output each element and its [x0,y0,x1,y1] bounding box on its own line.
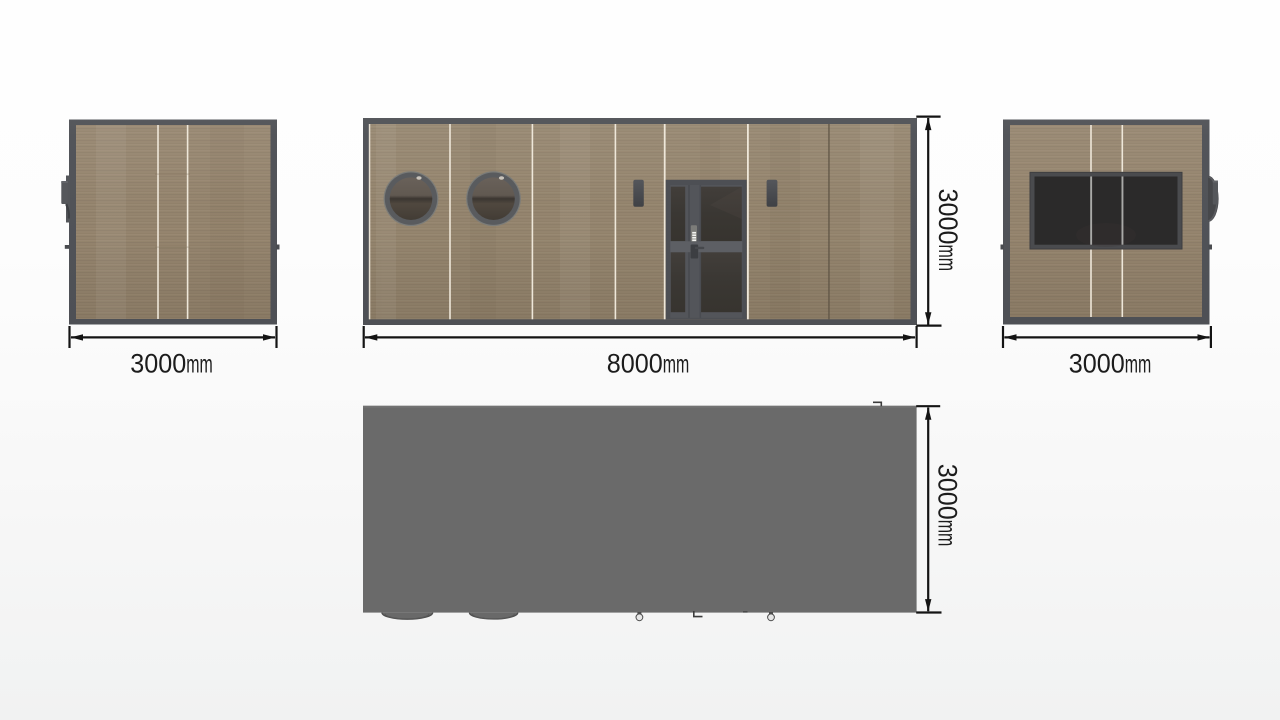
svg-text:3000: 3000 [933,464,963,520]
svg-text:mm: mm [663,351,690,379]
svg-text:3000: 3000 [1069,349,1125,379]
svg-text:3000: 3000 [130,349,186,379]
svg-text:mm: mm [933,245,961,272]
svg-text:mm: mm [933,520,961,547]
svg-text:mm: mm [1125,351,1152,379]
svg-text:3000: 3000 [933,189,963,245]
svg-text:8000: 8000 [607,349,663,379]
svg-text:mm: mm [186,351,213,379]
